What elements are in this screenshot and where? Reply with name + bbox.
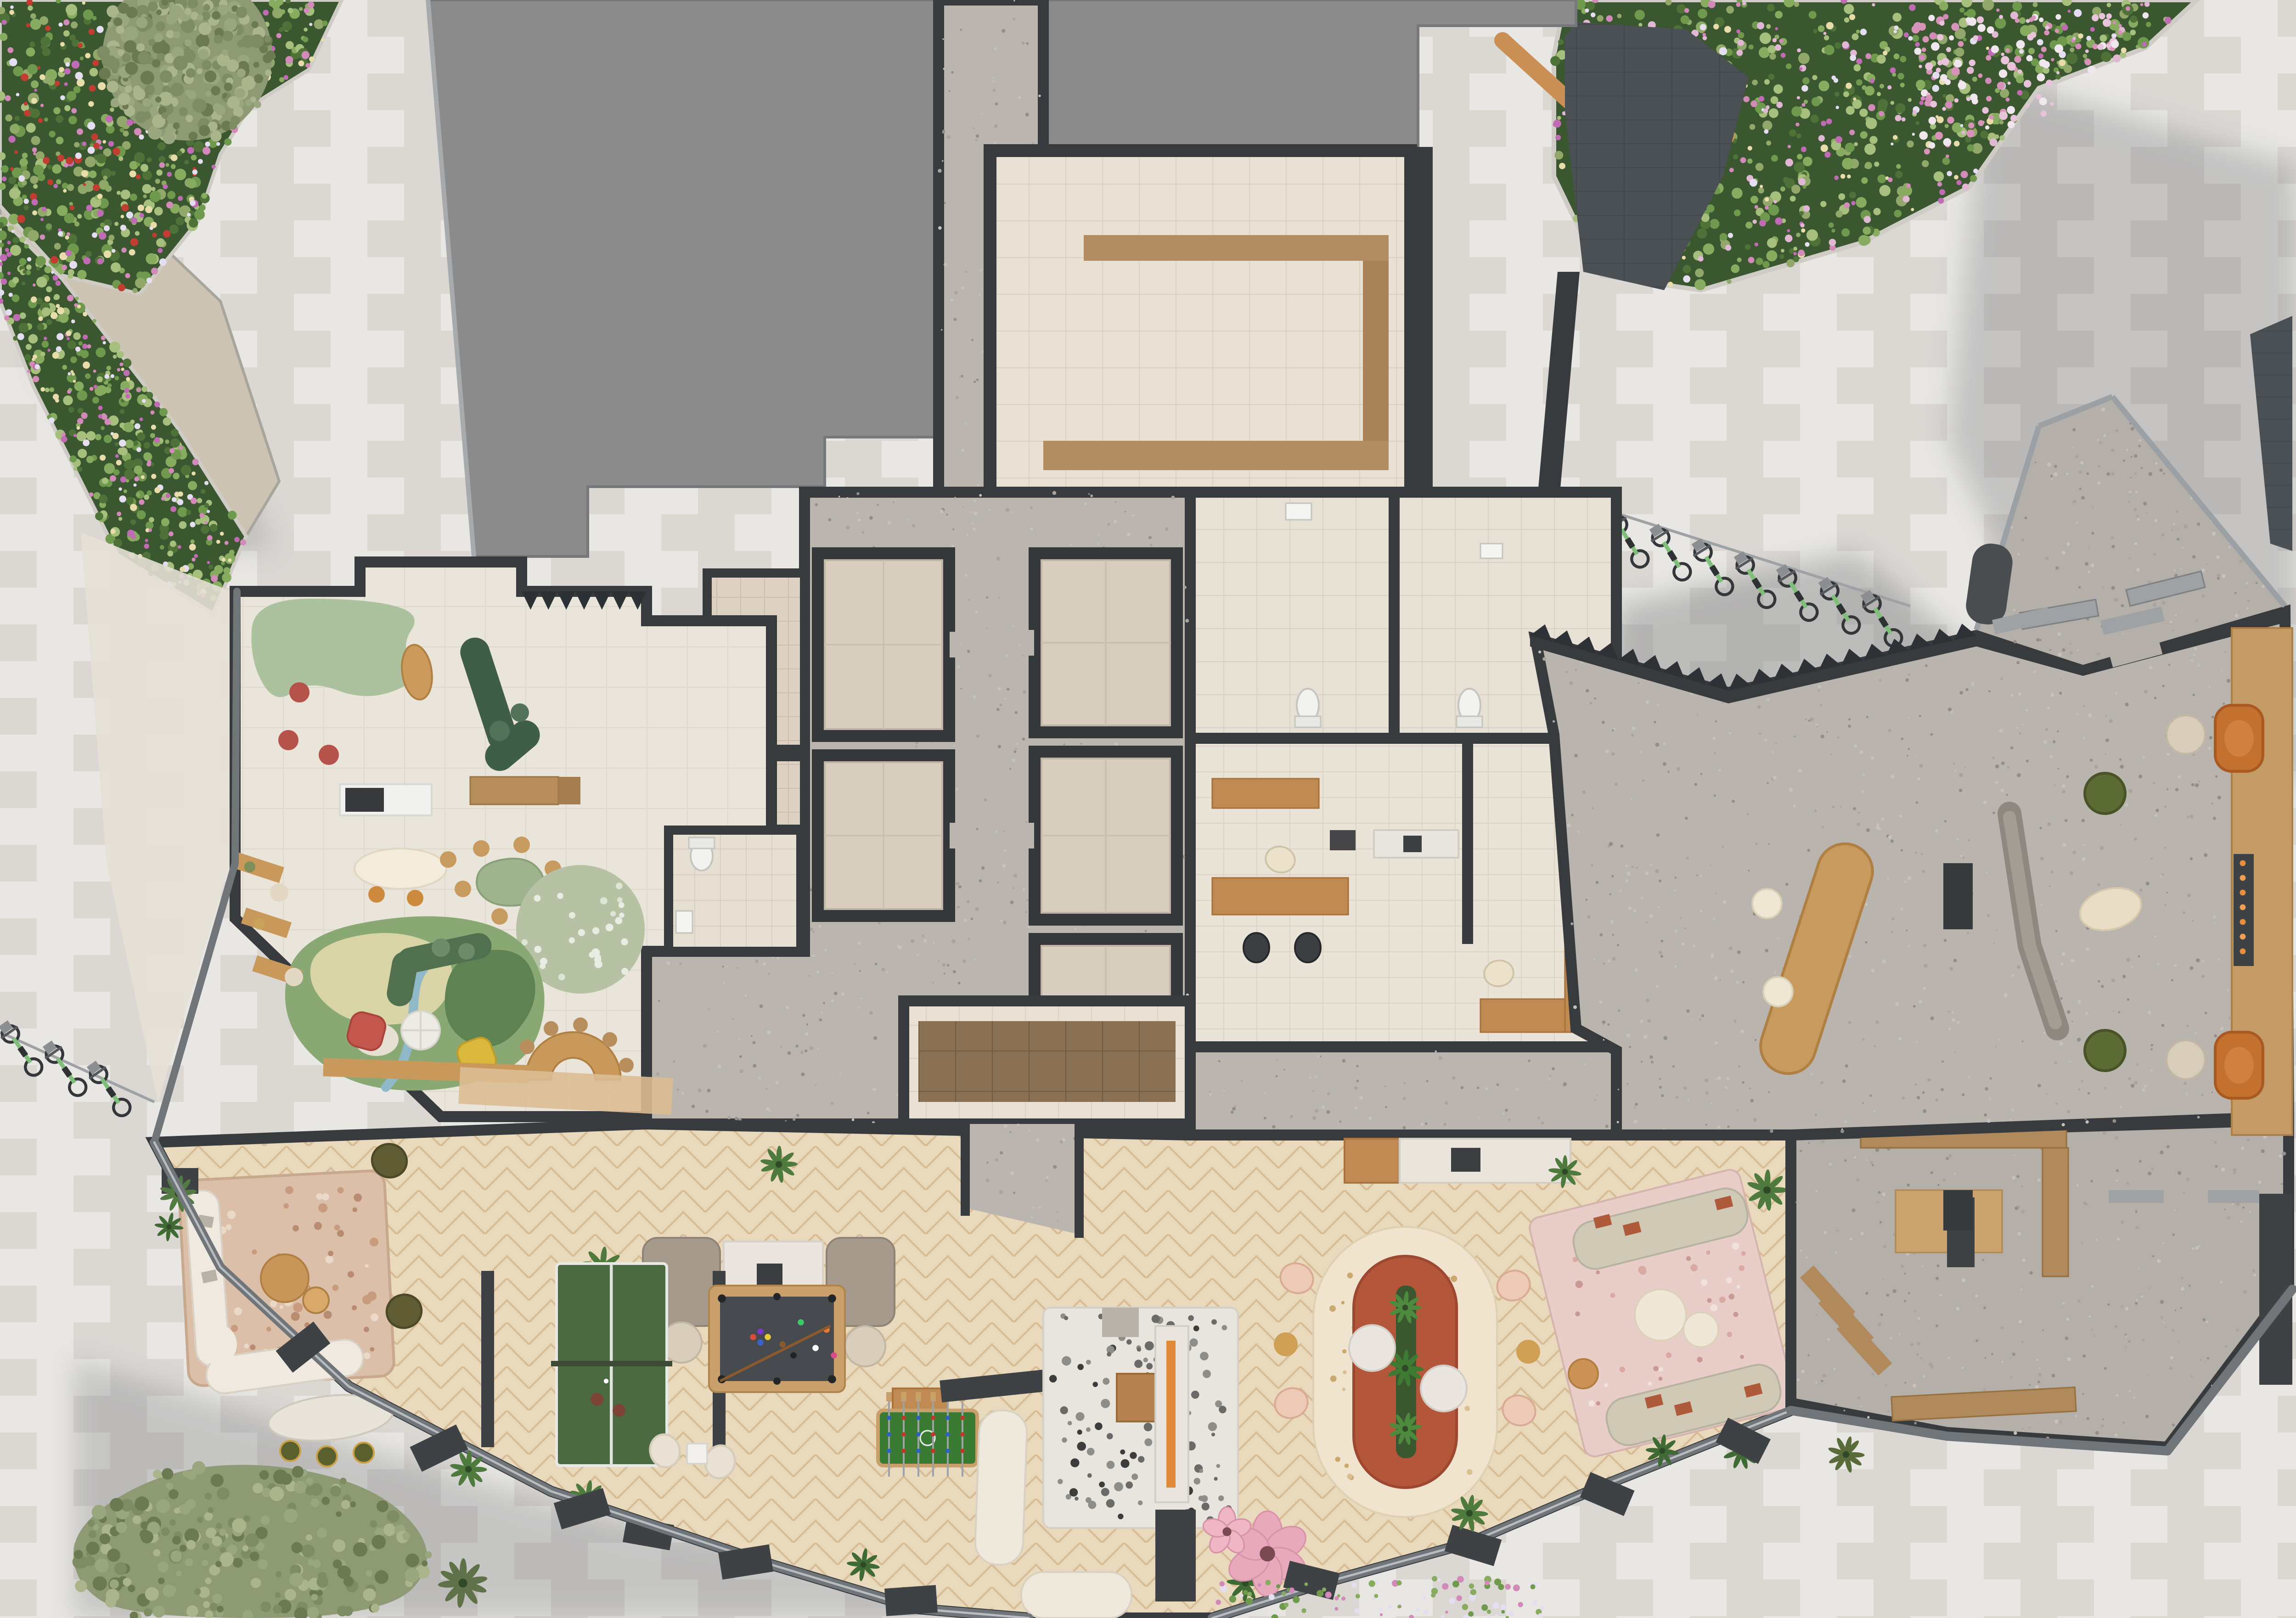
tv-lounge-throw xyxy=(1102,1308,1139,1337)
fireplace-dark-block xyxy=(1155,1510,1196,1601)
office1-desk xyxy=(1212,878,1348,915)
pool-pocket-2 xyxy=(828,1294,836,1303)
kids-sofa-cushion-1 xyxy=(490,721,510,741)
kids-amphitheater-stool-2 xyxy=(544,1021,558,1036)
sink-restroom-1 xyxy=(1286,503,1311,520)
pool-pocket-4 xyxy=(828,1375,836,1383)
lobby-armchair-orange-1-seat xyxy=(2224,720,2254,757)
kids-blob-chair-2 xyxy=(513,837,530,853)
lobby-armchair-orange-2-seat xyxy=(2224,1047,2254,1084)
lobby-zigzag-stool-2 xyxy=(1943,1190,1973,1230)
pingpong-partition-w xyxy=(481,1271,494,1447)
lobby-side-table-travertine-2 xyxy=(2167,1040,2205,1079)
lounge-chairs-sw-table xyxy=(687,1444,707,1464)
office-coffee-machine xyxy=(1403,836,1422,852)
sofa-e-coffee-table-sm xyxy=(1683,1312,1718,1347)
terrace-bench-wood-right xyxy=(2043,1148,2068,1276)
dining-pouf-tan-2 xyxy=(1516,1340,1540,1364)
lounge-w-coffee-table-lg xyxy=(261,1254,309,1302)
kids-stool-orange-1 xyxy=(368,886,385,903)
kids-sofa-cushion-2 xyxy=(511,703,529,722)
office1-guest-chair-2 xyxy=(1295,933,1321,962)
kids-rug-green xyxy=(252,599,415,697)
lobby-side-table-travertine-1 xyxy=(2167,715,2205,754)
kids-bathroom-toilet-tank xyxy=(689,837,715,848)
kids-cabinet-wood-1 xyxy=(470,777,558,804)
pool-pocket-1 xyxy=(718,1294,726,1303)
kitchen-island-wood xyxy=(1345,1139,1400,1183)
lounge-w-stool-olive-2 xyxy=(317,1446,337,1466)
kids-amphitheater-stool-3 xyxy=(573,1017,588,1032)
lounge-w-coffee-table-sm xyxy=(303,1287,329,1313)
kids-pouf-red-1 xyxy=(289,682,310,702)
kitchen-island-sink xyxy=(1451,1148,1480,1172)
sofa-e-coffee-table-lg xyxy=(1635,1289,1686,1341)
toilet-tank-2 xyxy=(1457,716,1482,727)
office-divider-wall xyxy=(1462,738,1473,944)
tv-lounge-coffee-table xyxy=(1117,1374,1157,1421)
toilet-tank-1 xyxy=(1295,716,1321,727)
amenity-entry-partition-e xyxy=(1075,1124,1084,1238)
flex-room-wood-band-bottom xyxy=(1043,441,1389,470)
flex-room-wood-band-top xyxy=(1084,235,1389,261)
flex-room-wood-band-right xyxy=(1363,261,1389,466)
elevator-shaft-a2 xyxy=(812,749,961,922)
kids-sofa-rug-cushion1 xyxy=(432,938,450,957)
facade-planter-5 xyxy=(884,1585,938,1616)
tv-lounge-sofa-south xyxy=(1021,1572,1131,1618)
kids-craft-table xyxy=(355,848,446,889)
elevator-shaft-b2 xyxy=(1023,746,1183,926)
fireplace-flame-channel xyxy=(1166,1341,1176,1488)
lounge-w-stool-olive-1 xyxy=(280,1441,300,1461)
kids-blob-chair-1 xyxy=(473,840,490,857)
parcel-lockers xyxy=(918,1021,1176,1102)
pingpong-net xyxy=(551,1361,672,1366)
kids-chair-wood-2 xyxy=(455,881,471,897)
pool-table-felt xyxy=(720,1297,834,1381)
reception-chair-1 xyxy=(1752,889,1782,918)
restroom-divider-wall xyxy=(1389,492,1400,738)
corridor-office-south xyxy=(1190,1047,1616,1136)
pool-pocket-5 xyxy=(773,1293,781,1300)
pingpong-paddle-1 xyxy=(591,1393,603,1406)
kids-side-table-1 xyxy=(270,883,288,902)
floor-plan-canvas xyxy=(0,0,2296,1618)
kids-chair-wood-1 xyxy=(440,851,456,868)
terrace-wall-bench-1 xyxy=(2109,1190,2164,1203)
elevator-shaft-b1 xyxy=(1023,547,1183,738)
kids-pouf-red-3 xyxy=(319,745,339,765)
lobby-pouf-green-1 xyxy=(2085,773,2125,814)
reception-chair-2 xyxy=(1763,977,1793,1006)
kids-sofa-rug-cushion2 xyxy=(458,943,475,960)
terrace-wall-bench-2 xyxy=(2208,1190,2259,1203)
sofa-e-side-table-wood xyxy=(1569,1359,1598,1388)
kids-side-table-2 xyxy=(285,968,303,986)
kids-amphitheater-stool-1 xyxy=(520,1039,535,1054)
lounge-w-sectional-corner xyxy=(197,1324,237,1365)
dining-table-marble-1 xyxy=(1349,1325,1395,1371)
office1-guest-chair-1 xyxy=(1244,933,1269,962)
lounge-w-stool-olive-3 xyxy=(354,1443,374,1463)
kids-pouf-red-2 xyxy=(278,730,298,750)
kids-bathroom-sink xyxy=(676,911,692,933)
pingpong-paddle-2 xyxy=(613,1404,625,1417)
office-printer xyxy=(1330,830,1356,850)
pool-pocket-6 xyxy=(773,1377,781,1385)
kids-amphitheater-stool-5 xyxy=(619,1058,634,1073)
floor-plan xyxy=(0,0,2296,1618)
office1-credenza xyxy=(1212,779,1319,808)
lobby-pouf-green-2 xyxy=(2085,1030,2125,1071)
dining-pouf-tan-1 xyxy=(1274,1332,1298,1356)
cafe-table-travertine-2 xyxy=(845,1326,885,1366)
dining-table-marble-2 xyxy=(1421,1365,1467,1411)
kids-cabinet-wood-2 xyxy=(558,777,580,804)
kids-bench-west-1-cushion xyxy=(244,861,255,872)
pingpong-ball xyxy=(604,1379,608,1383)
elevator-shaft-a1 xyxy=(812,547,961,742)
kids-blob-chair-5 xyxy=(491,908,508,925)
kids-amphitheater-stool-4 xyxy=(602,1032,617,1047)
kids-stool-orange-2 xyxy=(407,890,423,906)
kids-kitchenette-cooktop xyxy=(345,788,384,812)
sink-restroom-2 xyxy=(1480,544,1503,558)
kitchen-island-marble xyxy=(1400,1139,1570,1183)
amenity-entry-partition-w xyxy=(961,1124,970,1216)
kids-bench-west-2-cushion xyxy=(253,918,264,929)
tv-lounge-sofa-west xyxy=(974,1410,1028,1565)
lobby-zigzag-stool-1 xyxy=(1943,863,1973,929)
